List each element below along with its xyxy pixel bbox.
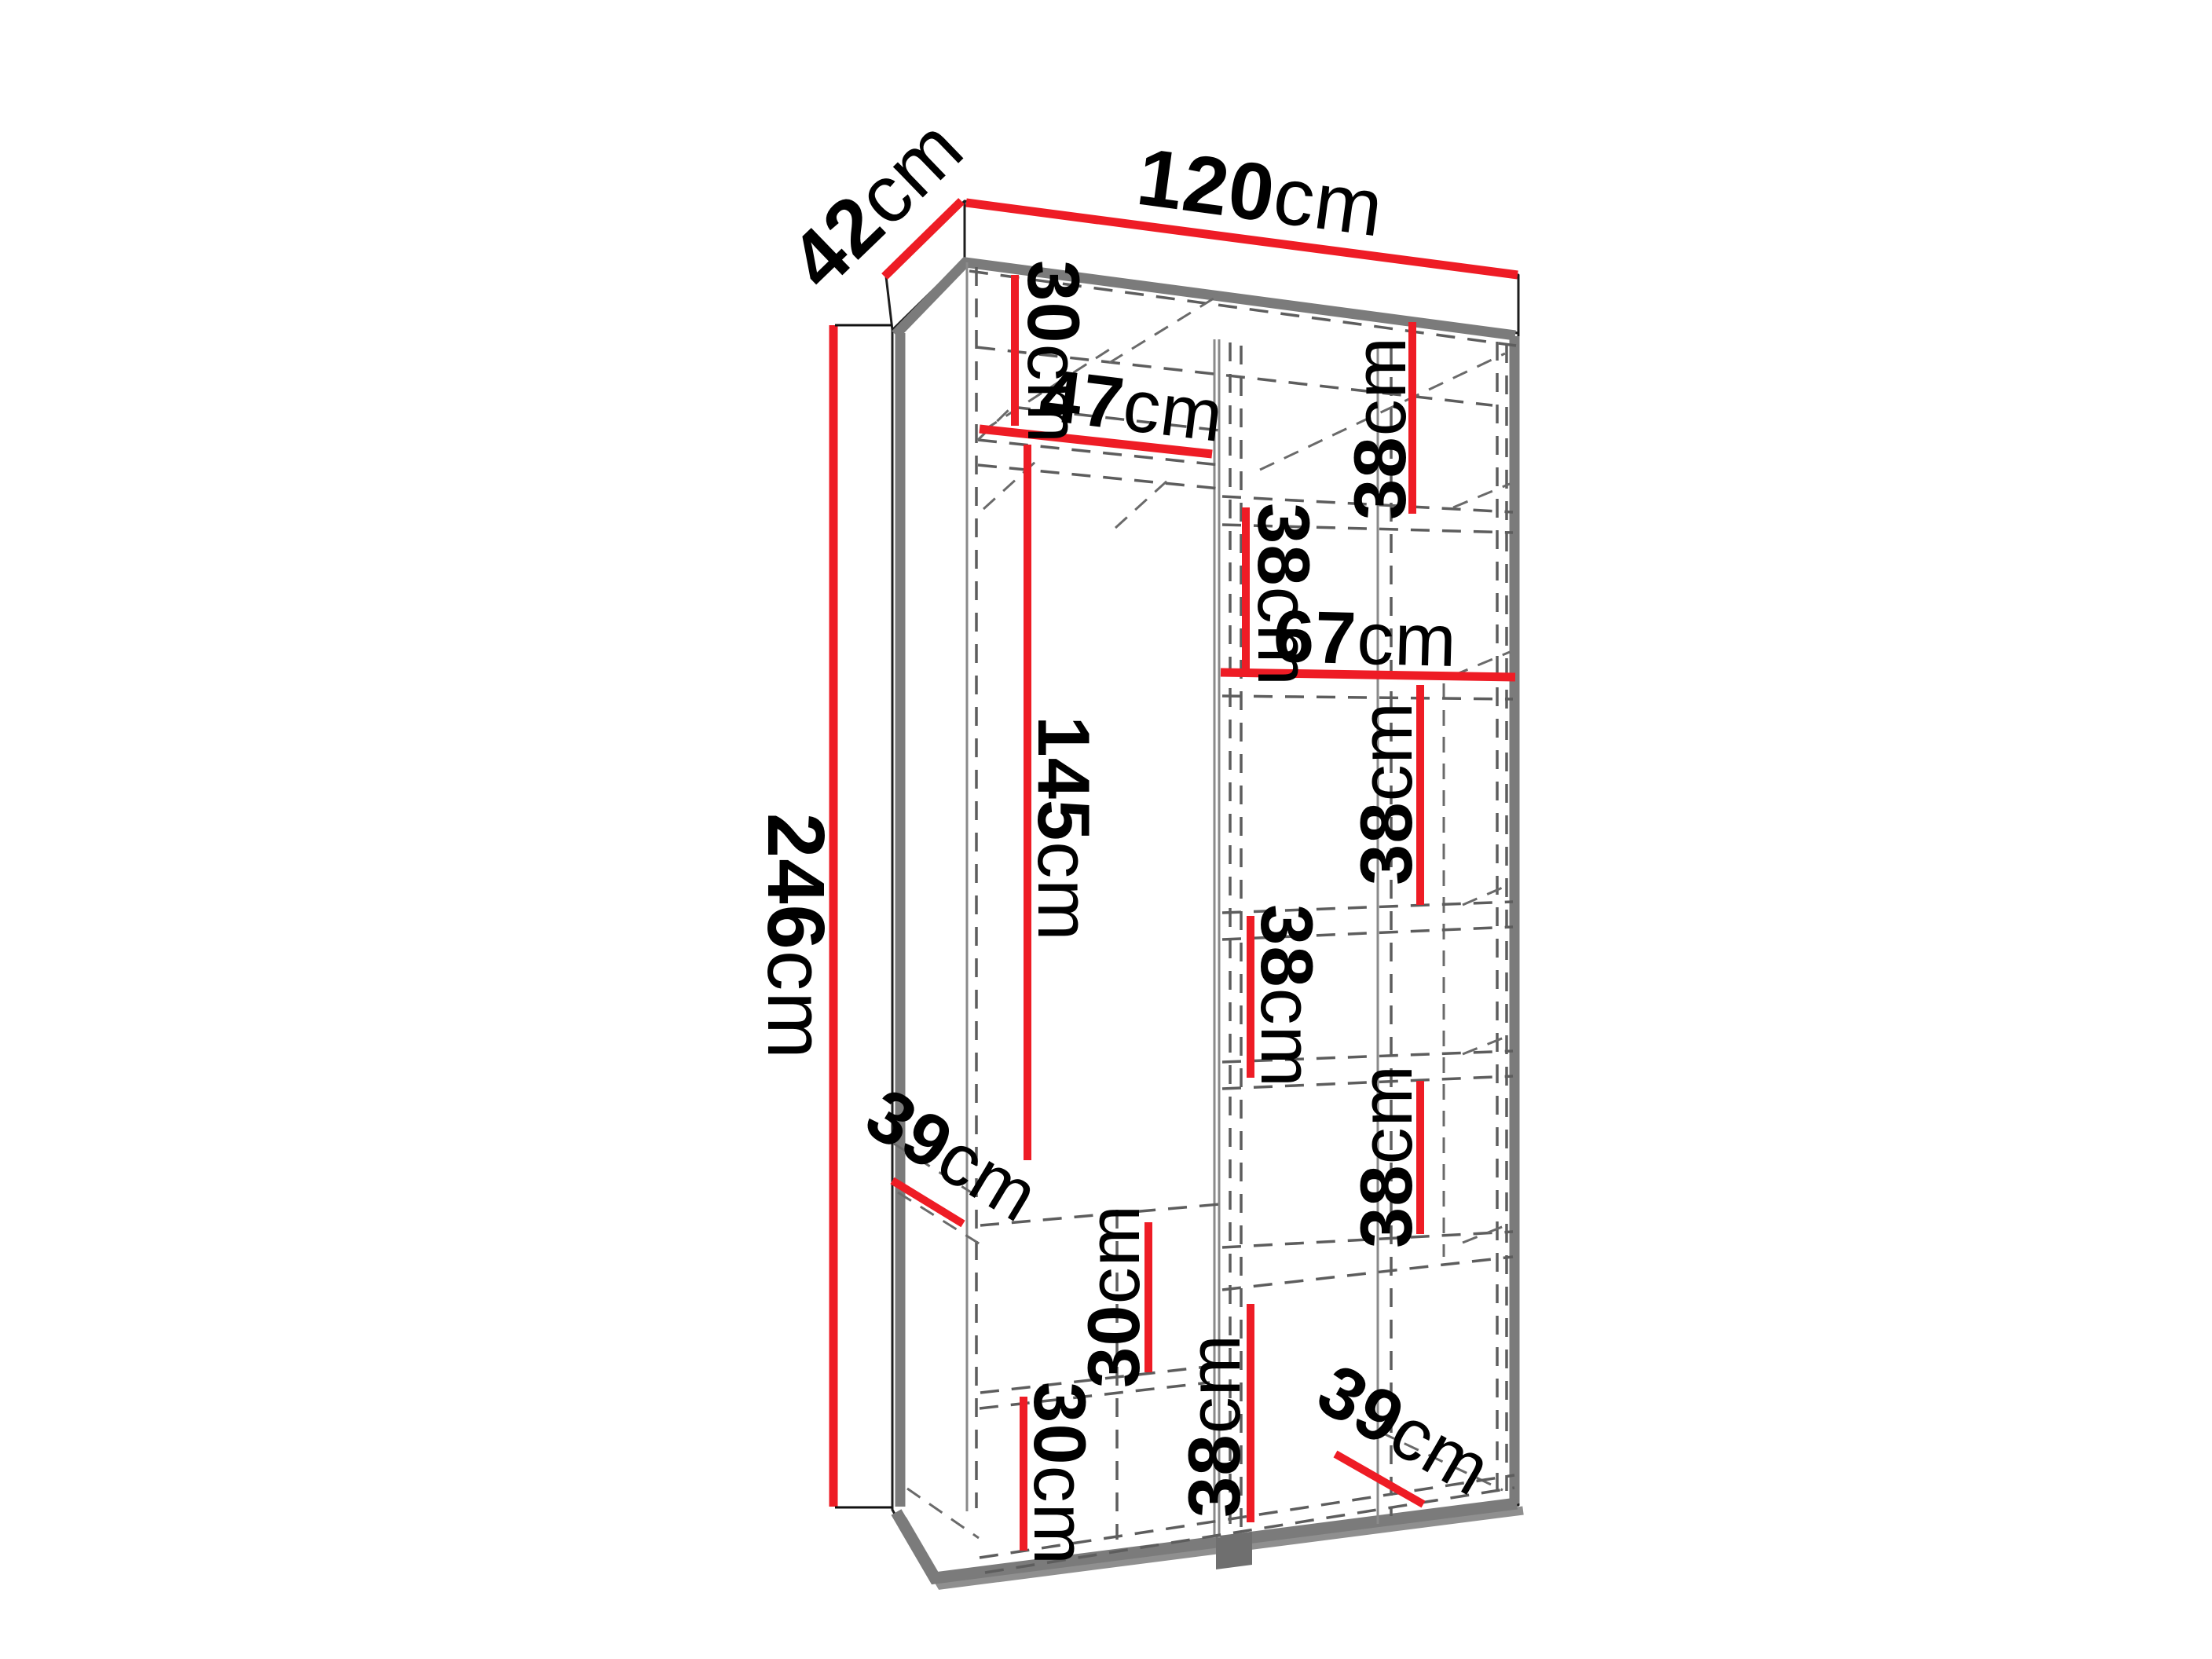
partition-foot-notch — [1216, 1532, 1252, 1569]
dimension-label-38cm-1: 38cm — [1339, 336, 1421, 520]
dimension-label-67cm: 67cm — [1273, 595, 1459, 682]
dimension-label-145cm: 145cm — [1023, 716, 1105, 941]
wardrobe-dimension-diagram: 42cm 120cm 246cm 30cm 47cm 38cm 38cm 67c… — [0, 0, 2212, 1659]
dimension-label-246cm: 246cm — [751, 813, 841, 1060]
dimension-label-38cm-5: 38cm — [1345, 1064, 1427, 1248]
dimension-label-30cm-lower: 30cm — [1019, 1382, 1101, 1566]
dimension-label-38cm-3: 38cm — [1345, 701, 1427, 885]
dimension-label-38cm-6: 38cm — [1173, 1334, 1255, 1518]
dimension-label-30cm-upper: 30cm — [1072, 1204, 1155, 1388]
dimension-label-38cm-4: 38cm — [1246, 904, 1328, 1088]
